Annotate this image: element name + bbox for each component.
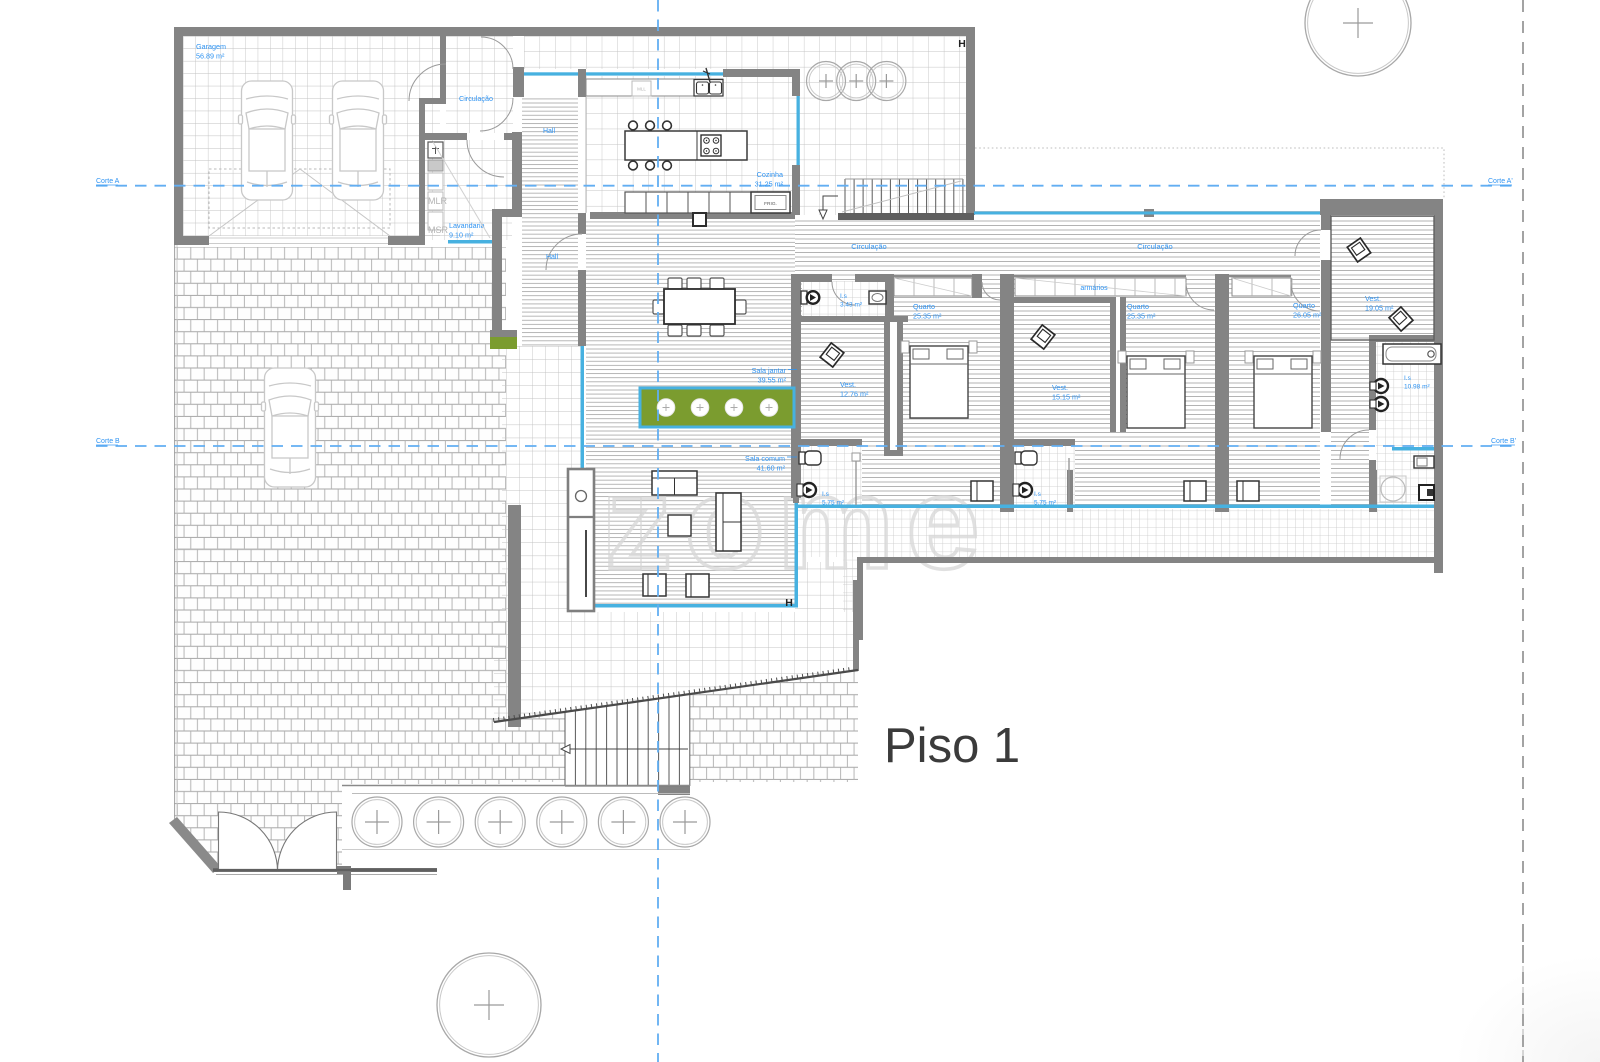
svg-text:Lavandaria: Lavandaria [449,221,485,230]
svg-text:FRIG.: FRIG. [764,201,777,207]
svg-text:Garagem: Garagem [196,42,226,51]
svg-text:Vest.: Vest. [840,380,856,389]
svg-text:41.60 m²: 41.60 m² [757,464,786,473]
svg-text:Cozinha: Cozinha [757,170,783,179]
svg-text:Sala jantar: Sala jantar [752,366,787,375]
svg-text:Corte A: Corte A [96,178,120,185]
svg-text:19.05 m²: 19.05 m² [1365,304,1394,313]
svg-text:Hall: Hall [546,254,559,261]
svg-text:9.10 m²: 9.10 m² [449,231,474,240]
svg-text:25.35 m²: 25.35 m² [913,312,942,321]
svg-text:Corte A': Corte A' [1488,178,1513,185]
svg-text:armários: armários [1080,285,1108,292]
svg-text:Quarto: Quarto [1127,302,1149,311]
svg-text:Corte B': Corte B' [1491,438,1516,445]
svg-text:Corte B: Corte B [96,438,120,445]
svg-text:I.s: I.s [1034,491,1042,498]
svg-text:3.43 m²: 3.43 m² [840,302,863,309]
svg-text:I.s: I.s [1404,375,1412,382]
svg-text:Circulação: Circulação [1137,242,1172,251]
svg-text:Quarto: Quarto [1293,301,1315,310]
svg-text:Piso 1: Piso 1 [884,719,1020,773]
svg-text:Vest.: Vest. [1052,383,1068,392]
svg-text:15.15 m²: 15.15 m² [1052,393,1081,402]
svg-text:10.98 m²: 10.98 m² [1404,384,1430,391]
svg-text:5.75 m²: 5.75 m² [1034,500,1057,507]
svg-text:H: H [785,597,793,609]
svg-text:5.75 m²: 5.75 m² [822,500,845,507]
svg-text:I.s: I.s [840,293,848,300]
svg-text:MSR: MSR [428,225,449,235]
svg-text:Sala comum: Sala comum [745,454,785,463]
svg-text:31.25 m²: 31.25 m² [755,180,784,189]
svg-text:Hall: Hall [543,128,556,135]
svg-text:Vest.: Vest. [1365,294,1381,303]
svg-text:25.35 m²: 25.35 m² [1127,312,1156,321]
svg-text:26.05 m²: 26.05 m² [1293,311,1322,320]
svg-text:39.55 m²: 39.55 m² [758,376,787,385]
svg-text:Circulação: Circulação [851,242,886,251]
svg-text:I.s: I.s [822,491,830,498]
svg-text:H: H [958,38,966,50]
svg-text:56.89 m²: 56.89 m² [196,52,225,61]
svg-text:Circulação: Circulação [459,94,493,103]
svg-text:MLL: MLL [637,87,646,92]
svg-text:12.76 m²: 12.76 m² [840,390,869,399]
svg-text:Quarto: Quarto [913,302,935,311]
svg-text:MLR: MLR [428,196,448,206]
